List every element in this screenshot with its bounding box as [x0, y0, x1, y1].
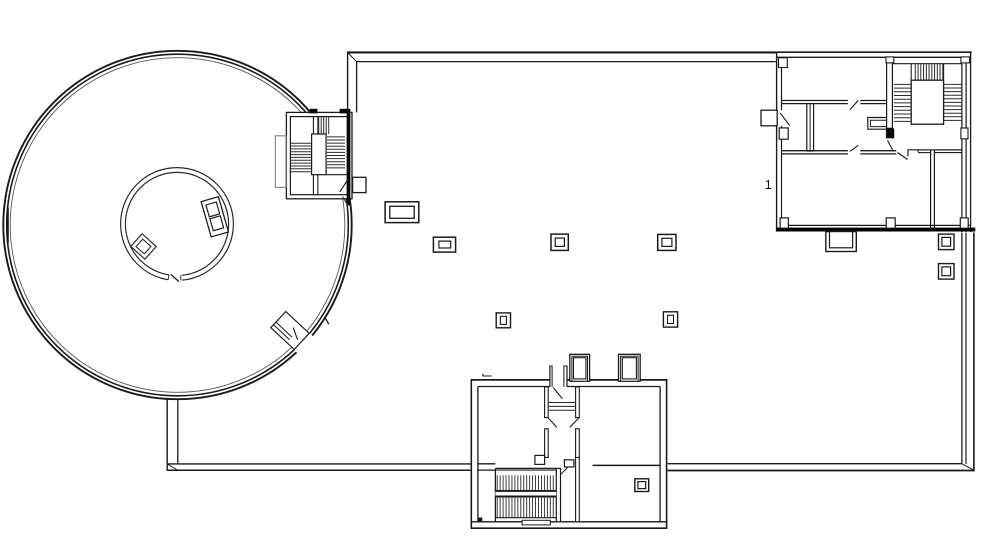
- svg-text:1: 1: [765, 178, 772, 192]
